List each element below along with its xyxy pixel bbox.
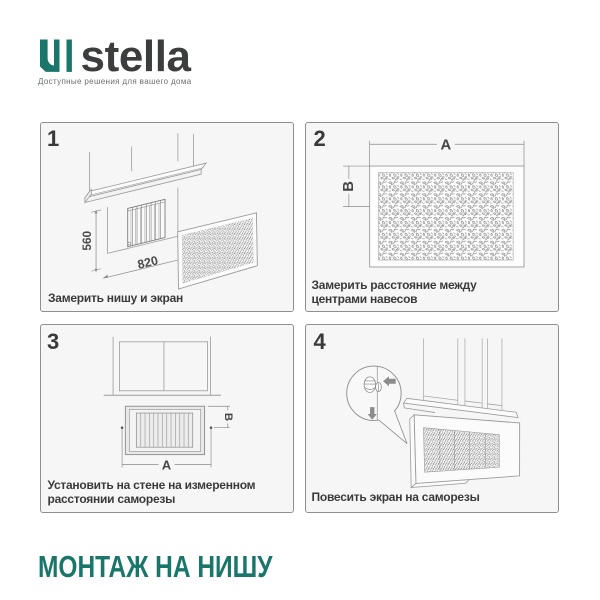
svg-text:B: B	[341, 180, 357, 191]
svg-text:560: 560	[79, 230, 93, 250]
svg-text:820: 820	[136, 253, 159, 271]
svg-text:A: A	[440, 137, 451, 153]
svg-text:B: B	[221, 412, 233, 420]
svg-text:A: A	[161, 457, 170, 472]
